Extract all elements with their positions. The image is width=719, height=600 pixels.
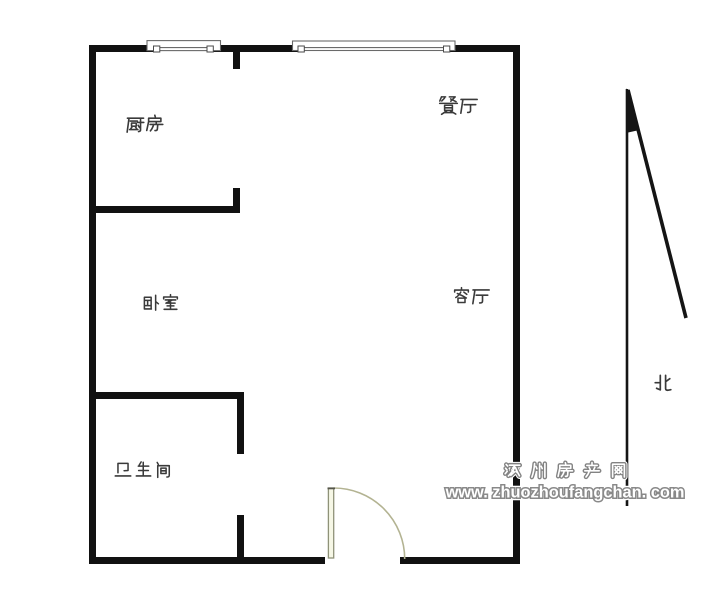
svg-text:www. zhuozhoufangchan. com: www. zhuozhoufangchan. com [445,484,685,502]
